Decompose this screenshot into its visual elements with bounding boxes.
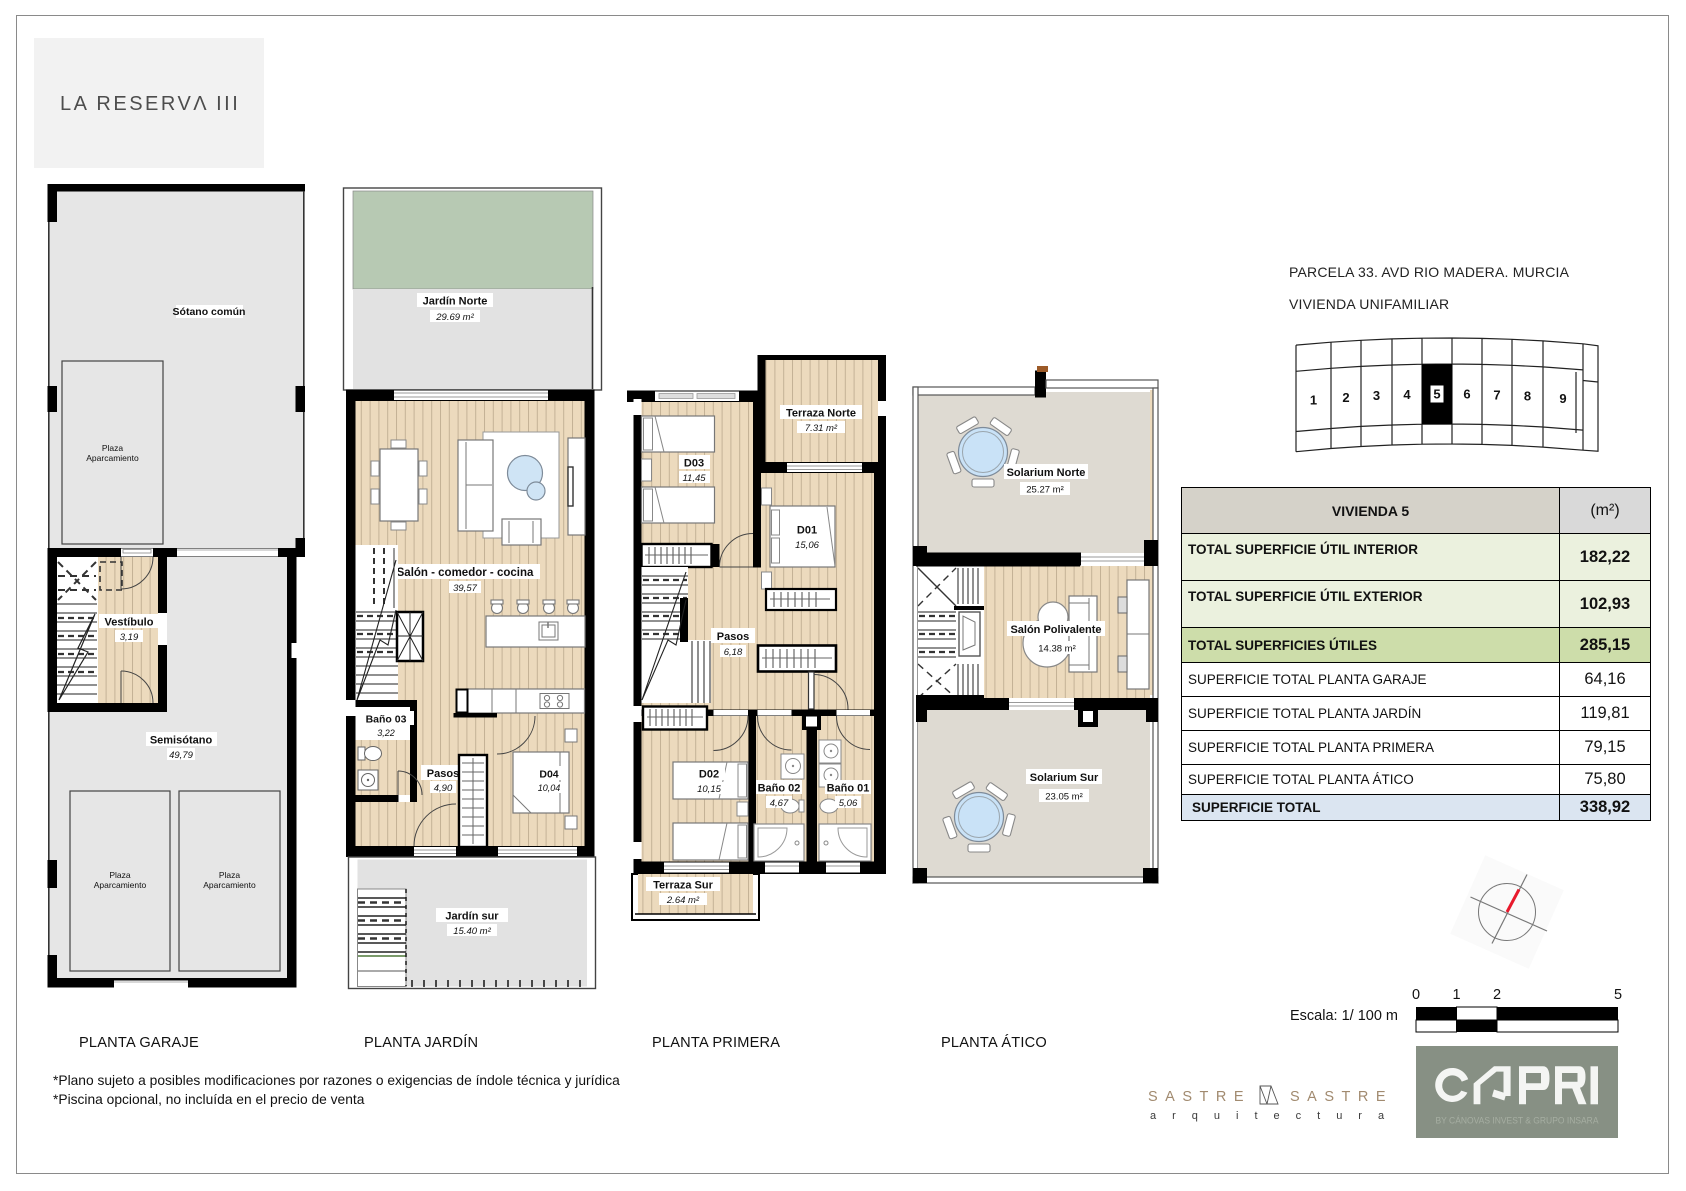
svg-text:3,22: 3,22 (377, 728, 395, 738)
svg-text:15,06: 15,06 (795, 540, 819, 551)
svg-text:Plaza: Plaza (219, 870, 241, 880)
svg-text:49,79: 49,79 (169, 750, 193, 761)
svg-text:1: 1 (1310, 392, 1317, 407)
svg-text:29.69 m²: 29.69 m² (435, 312, 474, 323)
svg-text:Solarium Norte: Solarium Norte (1007, 467, 1086, 479)
svg-text:9: 9 (1559, 391, 1566, 406)
svg-text:6: 6 (1463, 387, 1470, 402)
svg-text:Jardín Norte: Jardín Norte (423, 296, 488, 308)
svg-text:Plaza: Plaza (109, 870, 131, 880)
svg-text:Aparcamiento: Aparcamiento (203, 880, 256, 890)
svg-text:5: 5 (1614, 987, 1622, 1003)
svg-text:Aparcamiento: Aparcamiento (86, 453, 139, 463)
svg-text:Solarium Sur: Solarium Sur (1030, 772, 1099, 784)
svg-text:4: 4 (1403, 387, 1411, 402)
svg-text:5: 5 (1433, 387, 1440, 402)
svg-text:23.05 m²: 23.05 m² (1045, 792, 1083, 803)
svg-text:Salón - comedor - cocina: Salón - comedor - cocina (397, 567, 534, 579)
svg-text:7.31 m²: 7.31 m² (805, 423, 838, 434)
svg-text:2.64 m²: 2.64 m² (666, 895, 700, 906)
svg-text:6,18: 6,18 (724, 647, 743, 658)
svg-text:Pasos: Pasos (717, 631, 749, 643)
svg-text:Terraza Norte: Terraza Norte (786, 408, 856, 420)
svg-text:7: 7 (1493, 387, 1500, 402)
svg-text:Aparcamiento: Aparcamiento (94, 880, 147, 890)
svg-text:Semisótano: Semisótano (150, 735, 213, 747)
svg-text:Salón Polivalente: Salón Polivalente (1010, 624, 1101, 636)
svg-text:4,90: 4,90 (434, 783, 453, 794)
svg-text:1: 1 (1452, 987, 1460, 1003)
svg-text:D03: D03 (684, 458, 704, 470)
svg-text:Sótano común: Sótano común (173, 306, 246, 318)
svg-text:14.38 m²: 14.38 m² (1038, 644, 1076, 655)
svg-text:10,15: 10,15 (697, 784, 721, 795)
svg-text:2: 2 (1342, 390, 1349, 405)
svg-text:0: 0 (1412, 987, 1420, 1003)
svg-text:Baño 02: Baño 02 (758, 783, 801, 795)
svg-text:5,06: 5,06 (839, 798, 858, 809)
svg-text:D02: D02 (699, 769, 719, 781)
svg-text:D04: D04 (539, 769, 558, 781)
svg-text:3: 3 (1373, 388, 1380, 403)
svg-text:25.27 m²: 25.27 m² (1026, 485, 1064, 496)
svg-text:15.40 m²: 15.40 m² (453, 926, 491, 937)
svg-text:3,19: 3,19 (120, 632, 139, 643)
svg-text:39,57: 39,57 (453, 583, 477, 594)
svg-text:Pasos: Pasos (427, 768, 459, 780)
svg-text:4,67: 4,67 (770, 798, 789, 809)
svg-text:Baño 01: Baño 01 (827, 783, 870, 795)
svg-text:Baño 03: Baño 03 (366, 714, 407, 726)
svg-text:2: 2 (1493, 987, 1501, 1003)
svg-text:Plaza: Plaza (102, 443, 124, 453)
svg-text:Jardín sur: Jardín sur (445, 911, 499, 923)
svg-text:Terraza Sur: Terraza Sur (653, 880, 713, 892)
svg-text:D01: D01 (797, 525, 817, 537)
svg-text:8: 8 (1524, 389, 1531, 404)
svg-text:BY CÁNOVAS INVEST & GRUPO INSA: BY CÁNOVAS INVEST & GRUPO INSARA (1436, 1116, 1600, 1127)
svg-text:10,04: 10,04 (538, 783, 561, 793)
svg-text:11,45: 11,45 (682, 473, 706, 484)
svg-text:Vestíbulo: Vestíbulo (105, 617, 154, 629)
